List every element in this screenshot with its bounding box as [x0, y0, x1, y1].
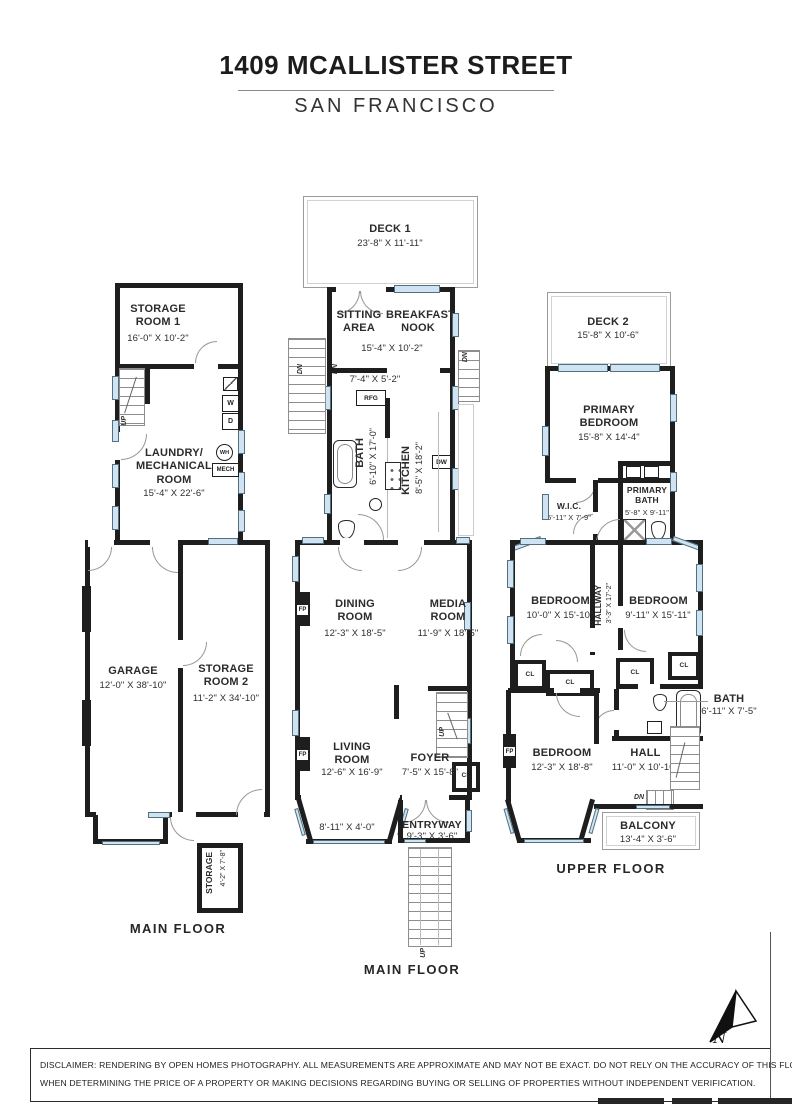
wall-pilaster: [82, 700, 91, 746]
wall: [428, 686, 472, 691]
room-label-deck2: DECK 2: [556, 316, 660, 329]
sliding-door: [610, 364, 660, 372]
room-dims-bath2: 6'-11" X 7'-5": [700, 706, 758, 717]
refrigerator-icon: RFG: [356, 390, 386, 406]
page-edge-line: [770, 932, 771, 1102]
window: [524, 839, 584, 843]
window: [324, 494, 331, 514]
down-label: DN: [462, 352, 469, 362]
window: [148, 812, 170, 818]
wall: [594, 690, 599, 744]
door-gap: [590, 628, 595, 652]
door-gap: [88, 538, 114, 547]
sink-icon: [369, 498, 382, 511]
wall: [440, 368, 455, 373]
room-label-breakfast: BREAKFAST NOOK: [386, 309, 450, 336]
up-label: UP: [121, 416, 128, 426]
room-dims-primary-bath: 5'-8" X 9'-11": [610, 508, 684, 517]
stove-icon: [385, 462, 401, 490]
floor-label-right: UPPER FLOOR: [545, 861, 677, 876]
stair-rail: [458, 404, 474, 536]
room-label-bedroom4: BEDROOM: [516, 747, 608, 760]
room-label-hall: HALL: [618, 747, 673, 760]
window: [112, 506, 119, 530]
room-dims-balcony: 13'-4" X 3'-6": [594, 834, 702, 845]
counter-line: [438, 412, 439, 532]
fireplace-icon: FP: [296, 604, 309, 616]
room-dims-foyer: 7'-5" X 15'-8": [394, 767, 466, 778]
door-arc: [624, 630, 646, 652]
room-dims-living: 12'-6" X 16'-9": [306, 767, 398, 778]
window: [636, 805, 670, 809]
wall: [385, 398, 390, 438]
closet-label: CL: [668, 662, 700, 670]
page-title: 1409 MCALLISTER STREET: [0, 50, 792, 81]
down-label: DN: [634, 794, 652, 801]
room-label-living: LIVING ROOM: [310, 741, 394, 768]
room-label-wic: W.I.C.: [544, 501, 594, 511]
window: [292, 556, 299, 582]
window: [292, 710, 299, 736]
room-label-storage3: STORAGE: [205, 852, 214, 894]
room-dims-media: 11'-9" X 18'-5": [401, 628, 495, 639]
room-label-foyer: FOYER: [399, 752, 461, 765]
room-label-bedroom3: BEDROOM: [616, 595, 701, 608]
title-underline: [238, 90, 554, 91]
door-arc: [520, 634, 542, 656]
shower-icon: [623, 519, 646, 541]
closet-label: CL: [616, 669, 654, 677]
room-dims-deck2: 15'-8" X 10'-6": [554, 330, 662, 341]
electrical-panel-icon: [223, 377, 238, 391]
window: [646, 538, 672, 545]
room-label-media: MEDIA ROOM: [406, 598, 490, 625]
room-dims-storage1: 16'-0" X 10'-2": [106, 333, 210, 344]
room-label-garage: GARAGE: [83, 665, 183, 678]
room-label-storage2: STORAGE ROOM 2: [176, 663, 276, 690]
window: [670, 394, 677, 422]
window: [394, 285, 440, 293]
room-dims-bedroom4: 12'-3" X 18'-8": [510, 762, 614, 773]
room-dims-bedroom2: 10'-0" X 15'-10": [510, 610, 610, 621]
room-label-balcony: BALCONY: [596, 820, 700, 833]
window: [112, 464, 119, 488]
door-gap: [614, 710, 619, 730]
sink-icon: [644, 466, 659, 478]
window: [208, 538, 238, 545]
window: [238, 472, 245, 494]
room-dims-bath: 6'-10" X 17'-0": [369, 428, 378, 485]
window: [520, 538, 546, 545]
garage-door: [102, 841, 160, 845]
room-label-bath: BATH: [355, 438, 366, 468]
stair-rail: [438, 849, 439, 945]
window: [542, 494, 549, 520]
window: [507, 560, 514, 588]
room-dims-bay: 8'-11" X 4'-0": [305, 822, 389, 833]
room-label-bedroom2: BEDROOM: [518, 595, 603, 608]
wall: [145, 364, 150, 404]
room-label-storage1: STORAGE ROOM 1: [108, 303, 208, 330]
sliding-door: [558, 364, 608, 372]
room-label-entryway: ENTRYWAY: [395, 819, 469, 832]
disclaimer-line-2: WHEN DETERMINING THE PRICE OF A PROPERTY…: [40, 1078, 760, 1088]
door-gap: [638, 684, 660, 689]
room-dims-entryway: 9'-3" X 3'-6": [393, 831, 471, 842]
watermark-fragment: [598, 1098, 664, 1104]
door-arc: [170, 817, 194, 841]
dishwasher-icon: DW: [432, 455, 451, 469]
room-dims-sitting-breakfast: 15'-4" X 10'-2": [340, 343, 444, 354]
window: [302, 537, 324, 544]
room-label-primary-bedroom: PRIMARY BEDROOM: [554, 404, 664, 431]
room-dims-deck1: 23'-8" X 11'-11": [336, 238, 444, 249]
door-arc: [556, 640, 578, 662]
wall: [327, 368, 387, 373]
stairs: [670, 726, 700, 790]
room-dims-storage2: 11'-2" X 34'-10": [172, 693, 280, 704]
compass-north-label: N: [712, 1029, 727, 1047]
room-label-sitting: SITTING AREA: [330, 309, 388, 336]
room-label-kitchen: KITCHEN: [401, 446, 412, 495]
wall-pilaster: [82, 586, 91, 632]
room-dims-bedroom3: 9'-11" X 15'-11": [608, 610, 708, 621]
stair-rail: [420, 849, 421, 945]
toilet-icon: [653, 694, 667, 711]
window: [670, 472, 677, 492]
up-label: UP: [439, 727, 446, 737]
room-label-bath2: BATH: [707, 693, 751, 706]
label-leader-line: [664, 701, 708, 702]
window: [313, 840, 385, 844]
window: [238, 510, 245, 532]
window: [238, 430, 245, 454]
floor-label-left: MAIN FLOOR: [116, 921, 240, 936]
dryer-icon: D: [222, 413, 239, 430]
room-dims-primary-bedroom: 15'-8" X 14'-4": [554, 432, 664, 443]
exterior-stairs: [288, 338, 326, 434]
wall: [394, 685, 399, 719]
down-label: DN: [297, 364, 304, 374]
room-dims-dining: 12'-3" X 18'-5": [308, 628, 402, 639]
watermark-fragment: [718, 1098, 792, 1104]
closet-label: CL: [546, 679, 594, 687]
disclaimer-box: [30, 1048, 771, 1102]
door-gap: [340, 538, 364, 547]
sink-icon: [626, 466, 641, 478]
window: [542, 426, 549, 456]
closet-label: CL: [514, 671, 546, 679]
fireplace-icon: FP: [296, 749, 309, 761]
room-dims-laundry: 15'-4" X 22'-6": [122, 488, 226, 499]
bay-gap: [301, 795, 400, 804]
room-label-laundry: LAUNDRY/ MECHANICAL ROOM: [124, 447, 224, 487]
north-compass-icon: N: [700, 985, 775, 1055]
washer-icon: W: [222, 395, 239, 412]
room-dims-pantry: 7'-4" X 5'-2": [338, 374, 412, 385]
sink-icon: [647, 721, 662, 734]
door-gap: [150, 538, 178, 547]
room-label-primary-bath: PRIMARY BATH: [616, 485, 678, 506]
floor-label-middle: MAIN FLOOR: [350, 962, 474, 977]
floor-plan-page: 1409 MCALLISTER STREET SAN FRANCISCO UP …: [0, 0, 792, 1120]
entry-stairs: [408, 847, 452, 947]
disclaimer-line-1: DISCLAIMER: RENDERING BY OPEN HOMES PHOT…: [40, 1060, 760, 1070]
up-label: UP: [420, 948, 427, 958]
room-label-deck1: DECK 1: [338, 223, 442, 236]
door-gap: [194, 362, 218, 371]
page-subtitle: SAN FRANCISCO: [0, 95, 792, 118]
room-label-dining: DINING ROOM: [313, 598, 397, 625]
window: [696, 564, 703, 592]
door-arc: [556, 693, 580, 717]
door-gap: [398, 538, 424, 547]
window: [112, 376, 119, 400]
room-dims-storage3: 4'-2" X 7'-8": [220, 850, 227, 886]
window: [112, 420, 119, 442]
watermark-fragment: [672, 1098, 712, 1104]
fireplace-icon: FP: [503, 746, 516, 757]
room-dims-kitchen: 8'-5" X 18'-2": [415, 442, 424, 494]
window: [456, 537, 470, 544]
room-dims-garage: 12'-0" X 38'-10": [78, 680, 188, 691]
